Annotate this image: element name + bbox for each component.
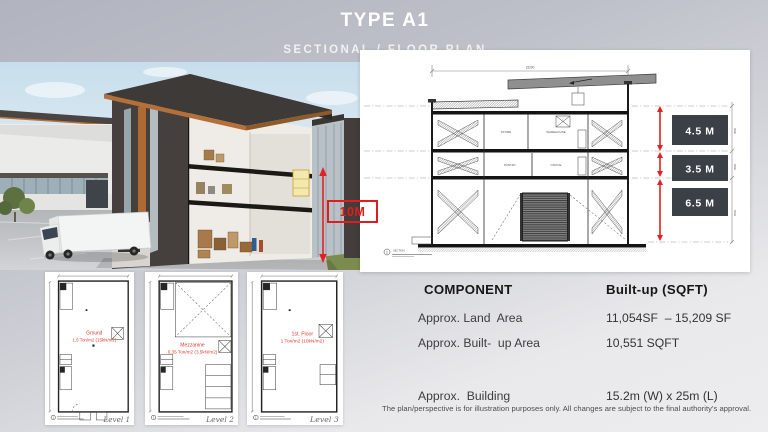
svg-text:4.5 M: 4.5 M: [685, 126, 714, 138]
top-dimension: 15200: [430, 65, 630, 77]
spec-value: 15.2m (W) x 25m (L) = 49.9' (W) X 82' (L…: [606, 361, 760, 432]
svg-text:3.5 M: 3.5 M: [685, 164, 714, 176]
yellow-rack: [293, 170, 309, 196]
room-store: STORE: [501, 130, 511, 134]
height-label-3-5m: 3.5 M: [672, 155, 728, 181]
main-roof: [508, 74, 656, 89]
level-label: Level 2: [205, 415, 234, 424]
section-drawing: 15200: [360, 50, 750, 272]
svg-text:3500: 3500: [733, 163, 737, 170]
spec-label: Approx. Land Area: [382, 311, 606, 325]
rooftop-unit: [572, 93, 584, 105]
svg-text:4500: 4500: [733, 127, 737, 134]
load-title: Ground: [86, 330, 102, 336]
disclaimer: The plan/perspective is for illustration…: [382, 404, 766, 413]
spec-label: Approx. Built- up Area: [382, 336, 606, 350]
level-label: Level 1: [102, 415, 130, 424]
first-floor-slab: [432, 176, 628, 180]
spec-row-builtup-area: Approx. Built- up Area 10,551 SQFT: [382, 336, 760, 350]
svg-text:1: 1: [153, 416, 155, 420]
slide: TYPE A1 SECTIONAL / FLOOR PLAN: [0, 0, 768, 432]
height-label-4-5m: 4.5 M: [672, 115, 728, 145]
height-arrows: [657, 106, 663, 241]
svg-text:15200: 15200: [526, 66, 535, 70]
second-floor-slab: [432, 149, 628, 153]
building-cutaway-render: [0, 62, 360, 270]
header: TYPE A1: [265, 10, 505, 32]
load-value: 1.5 Ton/m2 (15kN/m2): [72, 337, 116, 342]
spec-label: Approx. Building Dimension: [382, 361, 606, 432]
dimension-chain: 4500 3500 6500: [730, 102, 737, 244]
height-annotation-10m: 10M: [327, 200, 378, 223]
roof-slab: [432, 111, 628, 115]
height-label-6-5m: 6.5 M: [672, 188, 728, 216]
page-title: TYPE A1: [265, 10, 505, 32]
svg-text:1: 1: [53, 415, 55, 419]
floor-plan-level-2: Mezzanine 0.35 Ton/m2 (3.5kN/m2) 1 Level…: [145, 272, 238, 425]
svg-text:1: 1: [386, 250, 388, 254]
room-warehouse: WAREHOUSE: [546, 130, 566, 134]
spec-header-component: COMPONENT: [382, 282, 606, 297]
load-value: 1 Ton/m2 (10kN/m2): [281, 339, 325, 344]
section-panel: 15200: [360, 50, 750, 272]
load-title: 1st. Floor: [291, 331, 313, 337]
ground-slab: [418, 244, 646, 248]
spec-value: 10,551 SQFT: [606, 336, 760, 350]
room-office: OFFICE: [551, 163, 562, 167]
load-value: 0.35 Ton/m2 (3.5kN/m2): [168, 350, 218, 355]
roller-shutter-door: [520, 193, 570, 241]
spec-value: 11,054SF – 15,209 SF: [606, 311, 760, 325]
truck: [40, 212, 151, 262]
left-roof: [432, 100, 518, 109]
room-labels: STORE WAREHOUSE PANTRY OFFICE: [501, 130, 566, 167]
ceiling-vent: [556, 116, 570, 127]
svg-text:6.5 M: 6.5 M: [685, 198, 714, 210]
floor-plan-level-3: 1st. Floor 1 Ton/m2 (10kN/m2) 1 Level 3: [247, 272, 343, 425]
svg-text:1: 1: [255, 416, 257, 420]
floor-plan-level-1: Ground 1.5 Ton/m2 (15kN/m2) 1 Level 1: [45, 272, 134, 425]
spec-header-builtup: Built-up (SQFT): [606, 282, 760, 297]
load-title: Mezzanine: [180, 342, 205, 348]
svg-text:6500: 6500: [733, 209, 737, 216]
svg-text:SECTION: SECTION: [393, 249, 405, 253]
room-pantry: PANTRY: [504, 163, 516, 167]
spec-row-land-area: Approx. Land Area 11,054SF – 15,209 SF: [382, 311, 760, 325]
level-label: Level 3: [309, 415, 339, 424]
spec-row-building-dimension: Approx. Building Dimension 15.2m (W) x 2…: [382, 361, 760, 432]
